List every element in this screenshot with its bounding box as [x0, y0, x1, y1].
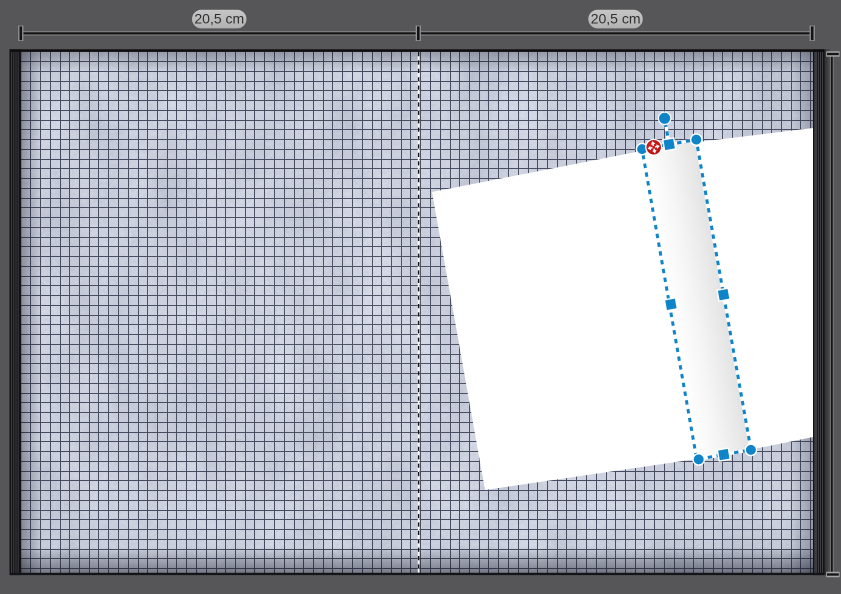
svg-text:20,5 cm: 20,5 cm — [194, 11, 244, 27]
svg-text:20,5 cm: 20,5 cm — [591, 11, 641, 27]
